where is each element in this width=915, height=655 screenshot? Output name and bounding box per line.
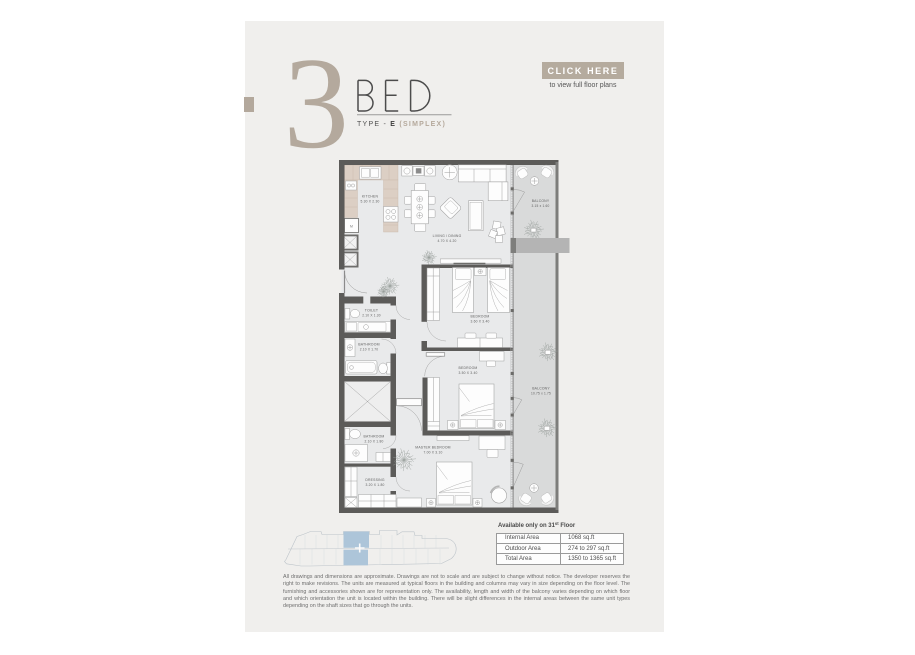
svg-text:TOILET: TOILET xyxy=(365,309,379,313)
svg-text:3.50 X 3.40: 3.50 X 3.40 xyxy=(458,371,477,375)
svg-text:2.10 X 1.80: 2.10 X 1.80 xyxy=(364,440,383,444)
svg-text:5.30 X 2.30: 5.30 X 2.30 xyxy=(360,200,379,204)
svg-text:2.10 X 1.30: 2.10 X 1.30 xyxy=(362,313,381,317)
svg-text:LIVING / DINING: LIVING / DINING xyxy=(433,234,462,238)
svg-text:3.60 X 3.40: 3.60 X 3.40 xyxy=(470,320,489,324)
svg-text:BATHROOM: BATHROOM xyxy=(358,343,380,347)
svg-text:BEDROOM: BEDROOM xyxy=(459,366,478,370)
svg-text:7.00 X 3.10: 7.00 X 3.10 xyxy=(423,451,442,455)
svg-text:KITCHEN: KITCHEN xyxy=(362,195,379,199)
svg-text:BATHROOM: BATHROOM xyxy=(364,435,385,439)
svg-text:BALCONY: BALCONY xyxy=(532,199,550,203)
svg-text:M: M xyxy=(350,225,353,229)
svg-text:BALCONY: BALCONY xyxy=(532,387,550,391)
svg-text:2.10 X 1.70: 2.10 X 1.70 xyxy=(360,347,379,351)
svg-text:10.75 x 1.75: 10.75 x 1.75 xyxy=(531,391,551,395)
svg-text:BEDROOM: BEDROOM xyxy=(471,315,490,319)
svg-text:4.70 X 4.20: 4.70 X 4.20 xyxy=(437,239,456,243)
svg-text:DRESSING: DRESSING xyxy=(365,478,384,482)
svg-text:3.20 X 1.80: 3.20 X 1.80 xyxy=(365,483,384,487)
svg-text:3.15 x 1.60: 3.15 x 1.60 xyxy=(532,204,550,208)
svg-text:MASTER BEDROOM: MASTER BEDROOM xyxy=(415,446,450,450)
